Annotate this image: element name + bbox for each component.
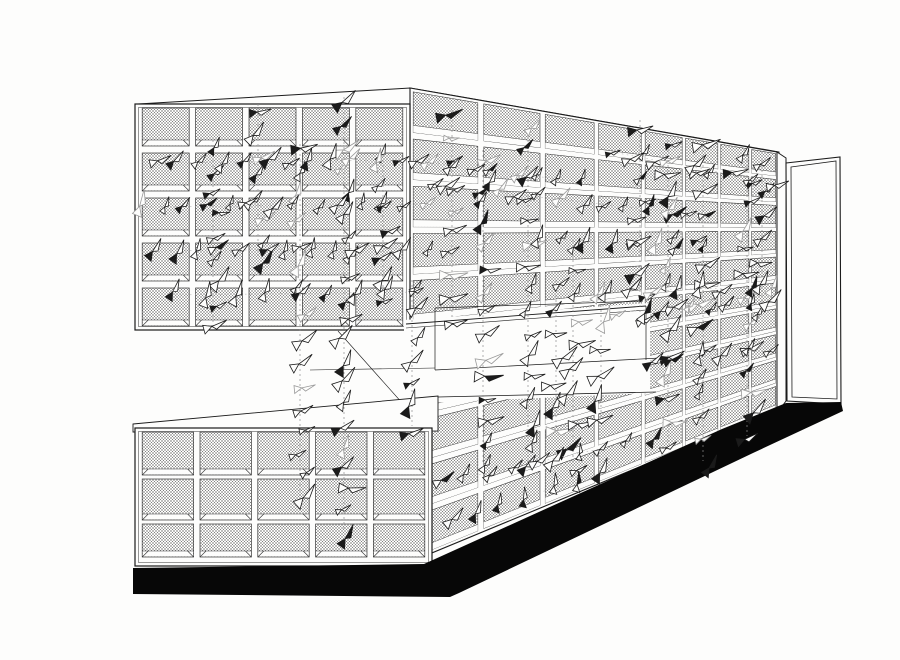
lower-front-wall [135, 428, 432, 566]
mesh-panel [142, 432, 193, 475]
mesh-panel [200, 432, 251, 475]
end-post [777, 152, 786, 413]
door-outer-frame [786, 157, 841, 404]
door-panel [786, 157, 841, 404]
mesh-panel [373, 432, 424, 475]
artwork-canvas [0, 0, 900, 660]
wall-end-post [777, 152, 786, 413]
upper-front-wall [135, 104, 410, 330]
pavilion-drawing [0, 0, 900, 660]
